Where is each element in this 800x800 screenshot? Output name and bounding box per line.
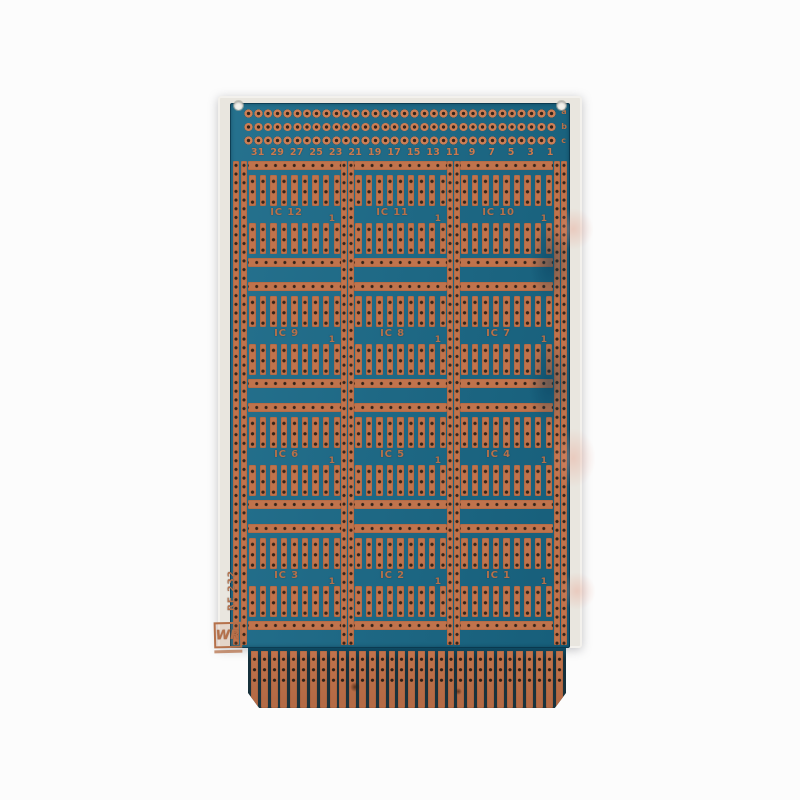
vertical-strip bbox=[524, 223, 531, 254]
connector-pad bbox=[381, 123, 390, 132]
connector-pad bbox=[517, 109, 526, 118]
connector-pad bbox=[283, 123, 292, 132]
vertical-strip bbox=[355, 223, 362, 254]
ic-label-band: IC 91 bbox=[248, 327, 341, 344]
vertical-strip bbox=[249, 417, 256, 448]
edge-finger-holes bbox=[507, 653, 514, 686]
connector-pad bbox=[342, 109, 351, 118]
edge-finger bbox=[487, 651, 494, 708]
edge-finger-holes bbox=[251, 653, 258, 686]
vertical-strip bbox=[524, 538, 531, 569]
vertical-strip bbox=[260, 223, 267, 254]
vertical-strip bbox=[408, 538, 415, 569]
vertical-strip bbox=[440, 538, 447, 569]
vertical-strip bbox=[461, 465, 468, 496]
horizontal-strip bbox=[248, 258, 341, 267]
vertical-strip bbox=[291, 223, 298, 254]
edge-finger-holes bbox=[369, 653, 376, 686]
vertical-strip bbox=[514, 344, 521, 375]
column-number: 9 bbox=[463, 147, 483, 159]
horizontal-strip bbox=[248, 524, 341, 533]
connector-pad bbox=[322, 136, 331, 145]
ic-cell: IC 111 bbox=[354, 161, 447, 282]
ic-column: IC 101IC 71IC 41IC 11 bbox=[460, 161, 553, 645]
board-part-number: RE 232 bbox=[227, 570, 237, 611]
ic-pin-strip-row bbox=[354, 465, 447, 496]
edge-finger bbox=[300, 651, 307, 708]
ic-pin-strip-row bbox=[248, 586, 341, 617]
vertical-strip bbox=[366, 344, 373, 375]
vertical-strip bbox=[440, 344, 447, 375]
connector-pad bbox=[459, 136, 468, 145]
ic-pin-strip-row bbox=[354, 344, 447, 375]
column-number: 31 bbox=[248, 147, 268, 159]
edge-finger bbox=[546, 651, 553, 708]
vertical-strip bbox=[281, 538, 288, 569]
vertical-strip bbox=[376, 417, 383, 448]
edge-finger-holes bbox=[487, 653, 494, 686]
column-number: 25 bbox=[307, 147, 327, 159]
connector-pad bbox=[322, 123, 331, 132]
ic-label: IC 8 bbox=[354, 328, 431, 339]
bus-group-right bbox=[553, 161, 568, 645]
vertical-strip bbox=[291, 538, 298, 569]
vertical-strip bbox=[514, 538, 521, 569]
connector-pad bbox=[293, 123, 302, 132]
vertical-strip bbox=[270, 586, 277, 617]
vertical-strip bbox=[440, 586, 447, 617]
vertical-strip bbox=[291, 465, 298, 496]
connector-pad bbox=[439, 109, 448, 118]
ic-pin-strip-row bbox=[248, 175, 341, 206]
vertical-strip bbox=[281, 417, 288, 448]
ic-pin-strip-row bbox=[460, 175, 553, 206]
vertical-strip bbox=[312, 538, 319, 569]
manufacturer-logo-monogram: WR bbox=[214, 622, 243, 649]
vertical-strip bbox=[408, 417, 415, 448]
edge-finger-holes bbox=[418, 653, 425, 686]
vertical-strip bbox=[440, 175, 447, 206]
solder-mask-area: abc 312927252321191715131197531 IC 121IC… bbox=[230, 103, 570, 648]
bus-strip bbox=[447, 161, 453, 645]
ic-label-band: IC 121 bbox=[248, 206, 341, 223]
vertical-strip bbox=[493, 586, 500, 617]
connector-pad bbox=[273, 123, 282, 132]
connector-pad bbox=[537, 109, 546, 118]
edge-finger-holes bbox=[330, 653, 337, 686]
connector-pad bbox=[498, 136, 507, 145]
connector-pad bbox=[342, 123, 351, 132]
vertical-strip bbox=[387, 465, 394, 496]
vertical-strip bbox=[260, 344, 267, 375]
connector-pad bbox=[322, 109, 331, 118]
connector-pad bbox=[293, 109, 302, 118]
connector-pad bbox=[478, 136, 487, 145]
connector-pad bbox=[478, 109, 487, 118]
horizontal-strip bbox=[460, 500, 553, 509]
connector-pad bbox=[303, 136, 312, 145]
vertical-strip bbox=[249, 344, 256, 375]
vertical-strip bbox=[260, 586, 267, 617]
vertical-strip bbox=[514, 223, 521, 254]
vertical-strip bbox=[440, 417, 447, 448]
connector-pad bbox=[351, 136, 360, 145]
vertical-strip bbox=[270, 538, 277, 569]
pin1-marker: 1 bbox=[329, 577, 335, 587]
connector-pad bbox=[547, 136, 556, 145]
vertical-strip bbox=[281, 465, 288, 496]
vertical-strip bbox=[249, 223, 256, 254]
ic-cell: IC 81 bbox=[354, 282, 447, 403]
vertical-strip bbox=[535, 175, 542, 206]
ic-cell: IC 51 bbox=[354, 403, 447, 524]
vertical-strip bbox=[514, 175, 521, 206]
edge-finger bbox=[369, 651, 376, 708]
vertical-strip bbox=[472, 175, 479, 206]
ic-pin-strip-row bbox=[460, 586, 553, 617]
connector-pad bbox=[264, 109, 273, 118]
ic-pin-strip-row bbox=[354, 296, 447, 327]
connector-pad bbox=[244, 109, 253, 118]
connector-pad bbox=[254, 123, 263, 132]
edge-finger bbox=[497, 651, 504, 708]
ic-cell: IC 11 bbox=[460, 524, 553, 645]
edge-finger bbox=[251, 651, 258, 708]
horizontal-strip bbox=[354, 500, 447, 509]
vertical-strip bbox=[482, 465, 489, 496]
horizontal-strip bbox=[460, 403, 553, 412]
vertical-strip bbox=[387, 175, 394, 206]
vertical-strip bbox=[493, 465, 500, 496]
horizontal-strip bbox=[354, 161, 447, 170]
vertical-strip bbox=[482, 175, 489, 206]
vertical-strip bbox=[503, 417, 510, 448]
bus-strip bbox=[561, 161, 567, 645]
vertical-strip bbox=[440, 296, 447, 327]
connector-pad bbox=[547, 109, 556, 118]
vertical-strip bbox=[493, 417, 500, 448]
connector-pad bbox=[439, 123, 448, 132]
connector-pad bbox=[537, 136, 546, 145]
vertical-strip bbox=[429, 586, 436, 617]
column-number: 11 bbox=[443, 147, 463, 159]
vertical-strip bbox=[503, 175, 510, 206]
vertical-strip bbox=[323, 296, 330, 327]
connector-pad bbox=[371, 109, 380, 118]
edge-finger-holes bbox=[477, 653, 484, 686]
vertical-strip bbox=[323, 417, 330, 448]
vertical-strip bbox=[482, 344, 489, 375]
ic-cell: IC 71 bbox=[460, 282, 553, 403]
connector-pad bbox=[430, 136, 439, 145]
vertical-strip bbox=[302, 296, 309, 327]
vertical-strip bbox=[408, 465, 415, 496]
vertical-strip bbox=[429, 175, 436, 206]
connector-pad bbox=[517, 136, 526, 145]
pad-row-c bbox=[244, 136, 556, 145]
horizontal-strip bbox=[460, 161, 553, 170]
connector-pad bbox=[547, 123, 556, 132]
connector-row-labels: abc bbox=[561, 108, 567, 145]
edge-finger-holes bbox=[497, 653, 504, 686]
vertical-strip bbox=[376, 344, 383, 375]
column-number: 1 bbox=[541, 147, 561, 159]
edge-finger bbox=[379, 651, 386, 708]
vertical-strip bbox=[482, 223, 489, 254]
ic-pin-strip-row bbox=[354, 586, 447, 617]
vertical-strip bbox=[397, 344, 404, 375]
vertical-strip bbox=[472, 344, 479, 375]
connector-pad bbox=[381, 109, 390, 118]
connector-pad bbox=[312, 136, 321, 145]
horizontal-strip bbox=[460, 379, 553, 388]
connector-pad bbox=[469, 109, 478, 118]
vertical-strip bbox=[302, 465, 309, 496]
pin1-marker: 1 bbox=[329, 335, 335, 345]
horizontal-strip bbox=[248, 282, 341, 291]
vertical-strip bbox=[546, 538, 553, 569]
connector-pad bbox=[381, 136, 390, 145]
horizontal-strip bbox=[354, 621, 447, 630]
vertical-strip bbox=[302, 175, 309, 206]
vertical-strip bbox=[524, 417, 531, 448]
mounting-hole-top-left bbox=[234, 101, 243, 110]
pin1-marker: 1 bbox=[435, 335, 441, 345]
ic-label: IC 5 bbox=[354, 449, 431, 460]
vertical-strip bbox=[472, 296, 479, 327]
vertical-strip bbox=[270, 223, 277, 254]
vertical-strip bbox=[524, 296, 531, 327]
column-number: 13 bbox=[424, 147, 444, 159]
ic-cell: IC 101 bbox=[460, 161, 553, 282]
ic-label: IC 12 bbox=[248, 207, 325, 218]
horizontal-strip bbox=[248, 621, 341, 630]
connector-pad bbox=[488, 109, 497, 118]
ic-label: IC 10 bbox=[460, 207, 537, 218]
pcb-board: abc 312927252321191715131197531 IC 121IC… bbox=[218, 96, 582, 648]
horizontal-strip bbox=[248, 500, 341, 509]
connector-pad bbox=[303, 109, 312, 118]
horizontal-strip bbox=[354, 379, 447, 388]
vertical-strip bbox=[493, 344, 500, 375]
vertical-strip bbox=[408, 296, 415, 327]
edge-finger bbox=[438, 651, 445, 708]
column-number: 17 bbox=[385, 147, 405, 159]
connector-pad bbox=[254, 109, 263, 118]
connector-pad bbox=[508, 123, 517, 132]
vertical-strip bbox=[312, 586, 319, 617]
connector-pad bbox=[517, 123, 526, 132]
edge-finger-holes bbox=[389, 653, 396, 686]
edge-finger bbox=[536, 651, 543, 708]
vertical-strip bbox=[312, 175, 319, 206]
vertical-strip bbox=[302, 344, 309, 375]
column-number: 23 bbox=[326, 147, 346, 159]
vertical-strip bbox=[482, 538, 489, 569]
vertical-strip bbox=[397, 465, 404, 496]
edge-finger bbox=[467, 651, 474, 708]
edge-finger-holes bbox=[516, 653, 523, 686]
vertical-strip bbox=[334, 296, 341, 327]
vertical-strip bbox=[366, 465, 373, 496]
connector-pad bbox=[361, 123, 370, 132]
edge-finger bbox=[477, 651, 484, 708]
vertical-strip bbox=[429, 465, 436, 496]
horizontal-strip bbox=[248, 403, 341, 412]
edge-finger-holes bbox=[467, 653, 474, 686]
ic-label-band: IC 11 bbox=[460, 569, 553, 586]
connector-pad bbox=[400, 136, 409, 145]
vertical-strip bbox=[260, 175, 267, 206]
connector-pad bbox=[371, 123, 380, 132]
vertical-strip bbox=[418, 296, 425, 327]
vertical-strip bbox=[323, 223, 330, 254]
vertical-strip bbox=[546, 344, 553, 375]
horizontal-strip bbox=[460, 258, 553, 267]
vertical-strip bbox=[440, 465, 447, 496]
bus-strip bbox=[241, 161, 247, 645]
bus-separator bbox=[447, 161, 460, 645]
vertical-strip bbox=[355, 175, 362, 206]
connector-pad bbox=[390, 109, 399, 118]
vertical-strip bbox=[387, 296, 394, 327]
vertical-strip bbox=[366, 175, 373, 206]
ic-label: IC 9 bbox=[248, 328, 325, 339]
vertical-strip bbox=[493, 538, 500, 569]
connector-pad bbox=[410, 109, 419, 118]
edge-finger bbox=[418, 651, 425, 708]
vertical-strip bbox=[260, 538, 267, 569]
connector-pad bbox=[293, 136, 302, 145]
vertical-strip bbox=[535, 296, 542, 327]
vertical-strip bbox=[546, 223, 553, 254]
vertical-strip bbox=[429, 344, 436, 375]
ic-cell: IC 121 bbox=[248, 161, 341, 282]
column-number: 15 bbox=[404, 147, 424, 159]
connector-pad-grid bbox=[244, 109, 556, 145]
edge-finger bbox=[349, 651, 356, 708]
vertical-strip bbox=[334, 344, 341, 375]
vertical-strip bbox=[472, 538, 479, 569]
vertical-strip bbox=[482, 417, 489, 448]
connector-pad bbox=[459, 109, 468, 118]
ic-cell: IC 31 bbox=[248, 524, 341, 645]
ic-pin-strip-row bbox=[460, 417, 553, 448]
ic-cell: IC 41 bbox=[460, 403, 553, 524]
vertical-strip bbox=[546, 465, 553, 496]
vertical-strip bbox=[334, 465, 341, 496]
vertical-strip bbox=[376, 296, 383, 327]
edge-finger bbox=[408, 651, 415, 708]
vertical-strip bbox=[546, 296, 553, 327]
vertical-strip bbox=[535, 538, 542, 569]
connector-pad bbox=[420, 136, 429, 145]
ic-column: IC 111IC 81IC 51IC 21 bbox=[354, 161, 447, 645]
vertical-strip bbox=[472, 586, 479, 617]
edge-finger bbox=[457, 651, 464, 708]
edge-finger-holes bbox=[398, 653, 405, 686]
vertical-strip bbox=[546, 175, 553, 206]
ic-pin-strip-row bbox=[354, 223, 447, 254]
edge-finger-holes bbox=[526, 653, 533, 686]
vertical-strip bbox=[249, 465, 256, 496]
vertical-strip bbox=[418, 175, 425, 206]
edge-finger-holes bbox=[349, 653, 356, 686]
vertical-strip bbox=[366, 586, 373, 617]
ic-label-band: IC 31 bbox=[248, 569, 341, 586]
connector-pad bbox=[449, 109, 458, 118]
ic-pin-strip-row bbox=[354, 417, 447, 448]
pad-row-b bbox=[244, 123, 556, 132]
connector-pad bbox=[430, 123, 439, 132]
vertical-strip bbox=[397, 586, 404, 617]
edge-finger bbox=[556, 651, 563, 708]
vertical-strip bbox=[524, 465, 531, 496]
connector-pad bbox=[283, 109, 292, 118]
connector-pad bbox=[342, 136, 351, 145]
vertical-strip bbox=[503, 223, 510, 254]
vertical-strip bbox=[334, 175, 341, 206]
vertical-strip bbox=[408, 586, 415, 617]
vertical-strip bbox=[249, 296, 256, 327]
vertical-strip bbox=[376, 538, 383, 569]
vertical-strip bbox=[408, 344, 415, 375]
vertical-strip bbox=[397, 538, 404, 569]
vertical-strip bbox=[312, 296, 319, 327]
connector-pad bbox=[332, 123, 341, 132]
vertical-strip bbox=[535, 223, 542, 254]
vertical-strip bbox=[397, 175, 404, 206]
edge-finger-holes bbox=[300, 653, 307, 686]
connector-pad bbox=[303, 123, 312, 132]
vertical-strip bbox=[535, 344, 542, 375]
ic-label: IC 7 bbox=[460, 328, 537, 339]
vertical-strip bbox=[493, 296, 500, 327]
ic-pin-strip-row bbox=[248, 465, 341, 496]
vertical-strip bbox=[355, 586, 362, 617]
vertical-strip bbox=[387, 538, 394, 569]
connector-pad bbox=[400, 123, 409, 132]
edge-finger bbox=[389, 651, 396, 708]
connector-pad bbox=[390, 123, 399, 132]
ic-pin-strip-row bbox=[248, 296, 341, 327]
vertical-strip bbox=[535, 586, 542, 617]
vertical-strip bbox=[503, 465, 510, 496]
vertical-strip bbox=[461, 538, 468, 569]
vertical-strip bbox=[514, 465, 521, 496]
vertical-strip bbox=[281, 586, 288, 617]
vertical-strip bbox=[397, 223, 404, 254]
ic-pin-strip-row bbox=[460, 223, 553, 254]
vertical-strip bbox=[524, 175, 531, 206]
ic-pin-strip-row bbox=[354, 538, 447, 569]
vertical-strip bbox=[376, 586, 383, 617]
vertical-strip bbox=[366, 223, 373, 254]
vertical-strip bbox=[472, 465, 479, 496]
vertical-strip bbox=[461, 344, 468, 375]
edge-finger-holes bbox=[290, 653, 297, 686]
vertical-strip bbox=[312, 465, 319, 496]
connector-pad bbox=[449, 123, 458, 132]
vertical-strip bbox=[387, 586, 394, 617]
vertical-strip bbox=[355, 296, 362, 327]
pin1-marker: 1 bbox=[541, 456, 547, 466]
vertical-strip bbox=[334, 538, 341, 569]
vertical-strip bbox=[291, 296, 298, 327]
column-number: 5 bbox=[502, 147, 522, 159]
horizontal-strip bbox=[460, 282, 553, 291]
ic-label-band: IC 21 bbox=[354, 569, 447, 586]
